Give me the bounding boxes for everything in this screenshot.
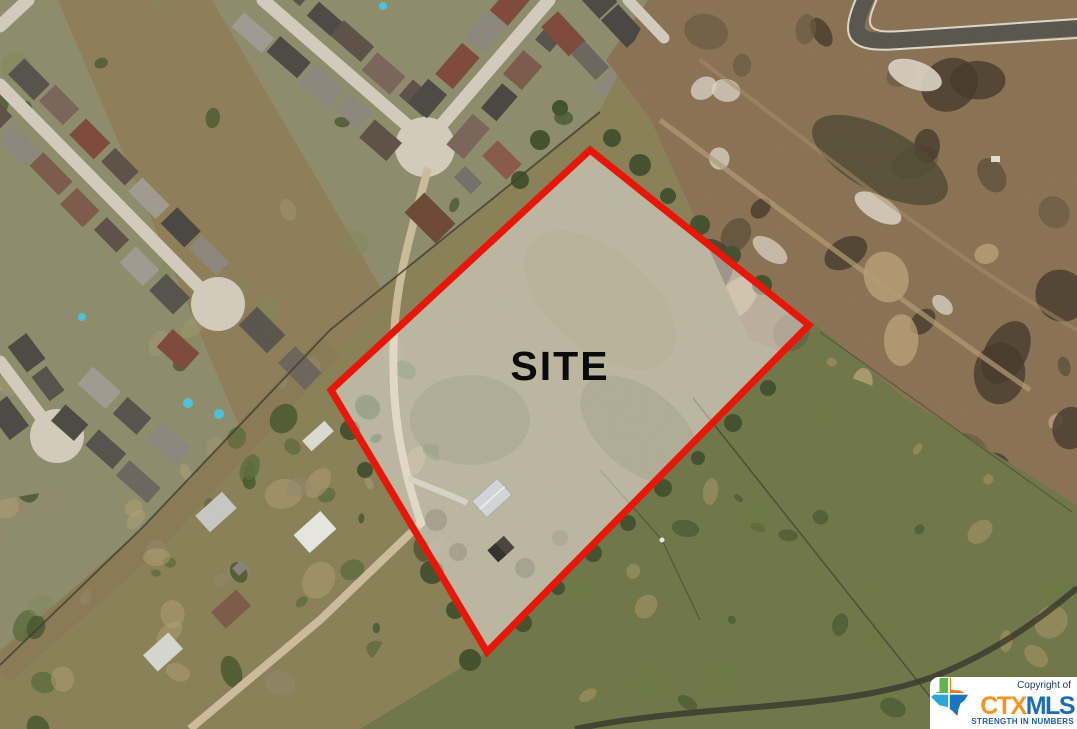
texas-blue-quadrant xyxy=(949,694,970,717)
texas-orange-quadrant xyxy=(949,677,970,694)
ctxmls-texas-icon xyxy=(930,677,970,717)
aerial-scene: SITE xyxy=(0,0,1077,729)
photo-grain xyxy=(0,0,1077,729)
aerial-photo: SITE Copyright of CTXMLS STRENGTH IN NUM… xyxy=(0,0,1077,729)
brand-mls: MLS xyxy=(1026,692,1074,720)
ctxmls-watermark: Copyright of CTXMLS STRENGTH IN NUMBERS xyxy=(930,677,1077,729)
texas-divider xyxy=(930,693,970,695)
texas-teal-quadrant xyxy=(930,694,949,717)
brand-ctx: CTX xyxy=(980,692,1026,720)
watermark-box: Copyright of CTXMLS STRENGTH IN NUMBERS xyxy=(930,677,1077,729)
texas-green-quadrant xyxy=(930,677,949,694)
copyright-text: Copyright of xyxy=(1017,680,1071,691)
texas-divider xyxy=(948,677,950,717)
brand-tagline: STRENGTH IN NUMBERS xyxy=(934,717,1074,726)
